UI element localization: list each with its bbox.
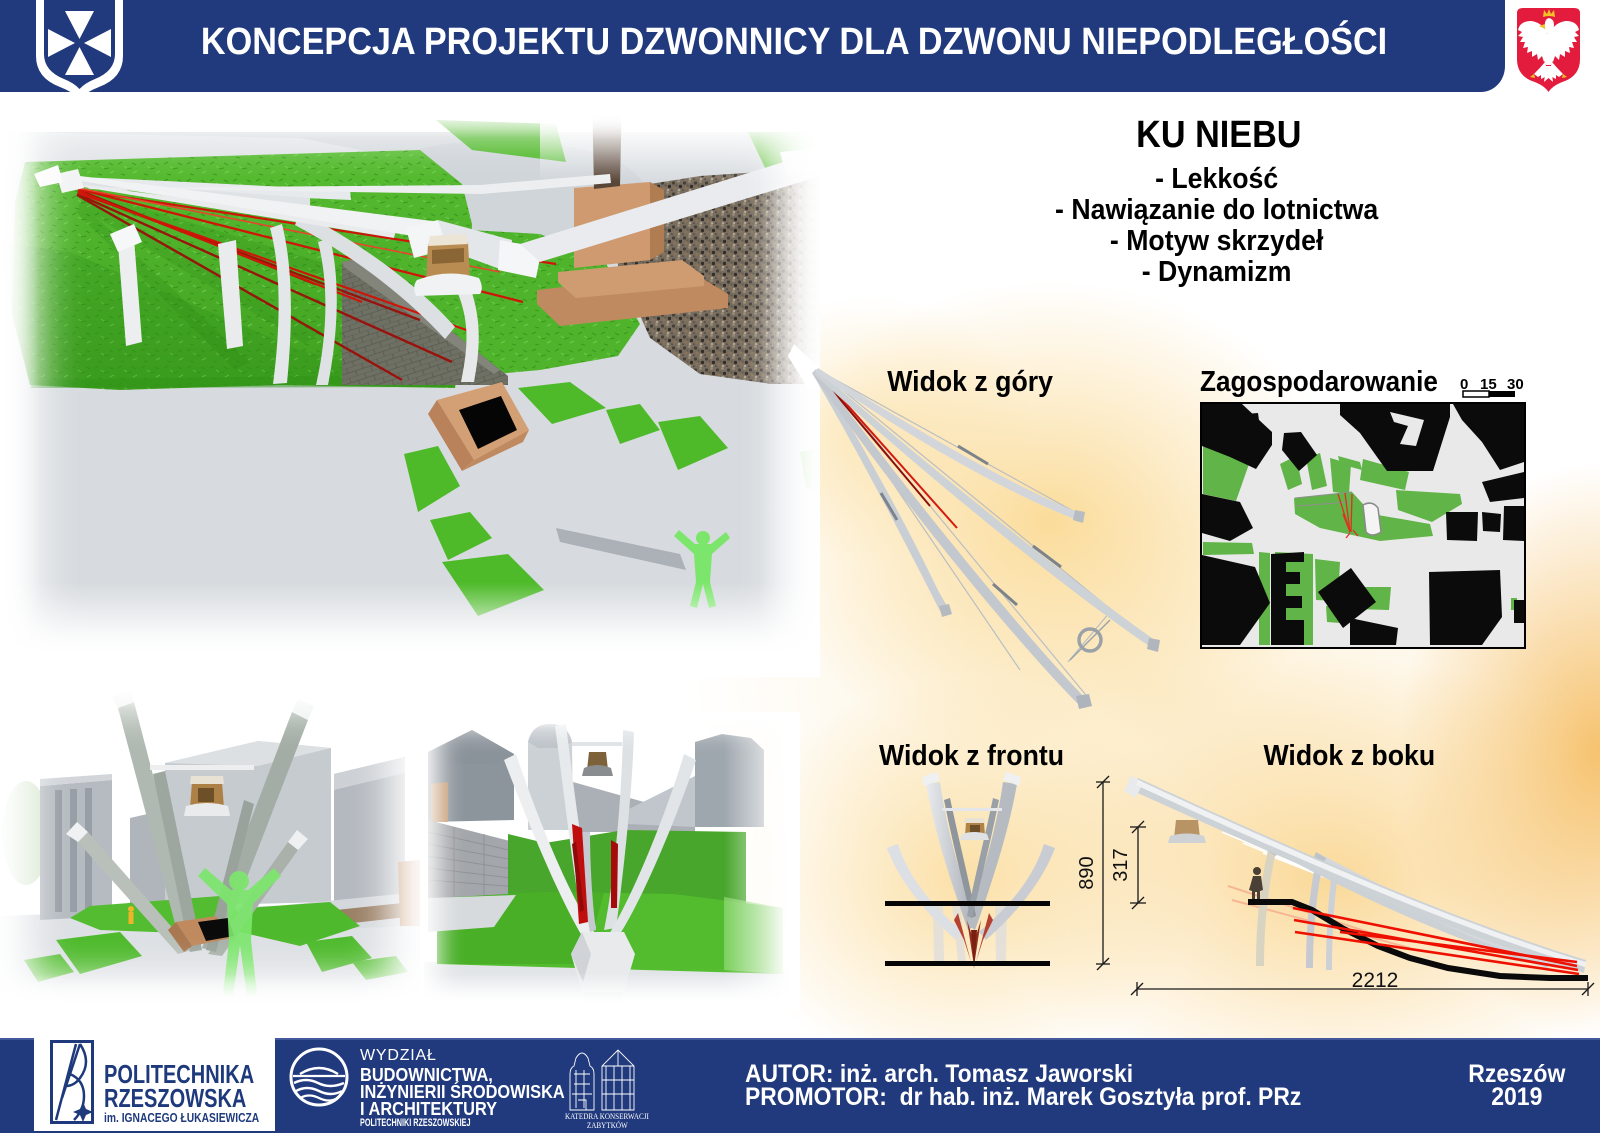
svg-text:2212: 2212 <box>1352 969 1399 992</box>
svg-text:317: 317 <box>1110 848 1132 881</box>
svg-text:30: 30 <box>1507 376 1524 393</box>
